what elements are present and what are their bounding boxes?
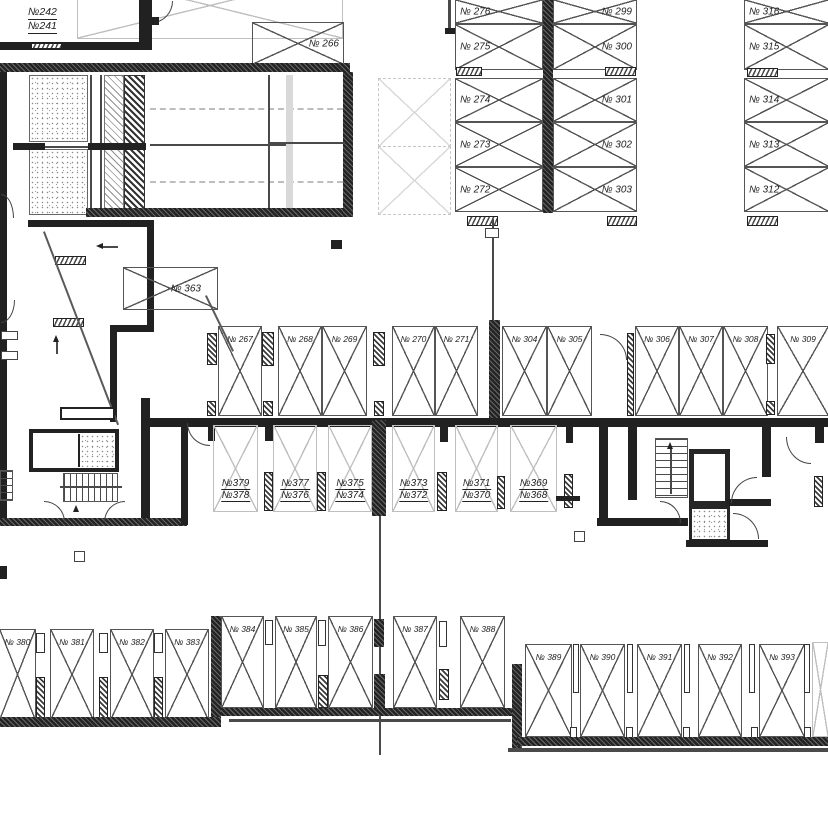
door-arc xyxy=(1,300,15,323)
stairs xyxy=(0,470,13,501)
space-label: № 299 xyxy=(602,6,632,17)
space-label: № 266 xyxy=(309,38,339,49)
vent-grille xyxy=(607,216,637,226)
space-label: № 301 xyxy=(602,95,632,106)
stair-arrow-icon xyxy=(73,505,79,512)
space-label: № 272 xyxy=(460,184,490,195)
space-label: № 392 xyxy=(707,652,733,662)
floor-plan-canvas: №242 №241 № 266 № 276 № 275 № 274 № 273 xyxy=(0,0,828,813)
space-label: № 276 xyxy=(460,6,490,17)
vent-stud xyxy=(684,644,690,693)
space-label: № 305 xyxy=(557,334,583,344)
shaft-room xyxy=(689,506,730,542)
vent-stud xyxy=(99,633,108,653)
outer-wall xyxy=(0,717,221,727)
space-pair-label: №371№370 xyxy=(462,478,492,502)
space-306-box: № 306 xyxy=(635,326,679,416)
door-arc xyxy=(731,477,757,503)
door-arc xyxy=(1,194,14,218)
space-pair-label: №377№376 xyxy=(280,478,310,502)
space-label: № 300 xyxy=(602,42,632,53)
space-309-box: № 309 xyxy=(777,326,828,416)
pillar xyxy=(374,401,384,416)
space-273-box: № 273 xyxy=(455,122,543,167)
dashed-space-box xyxy=(378,146,451,215)
pillar xyxy=(264,472,273,511)
space-label: № 270 xyxy=(401,334,427,344)
pillar xyxy=(627,333,634,416)
stair-arrow-line xyxy=(670,448,672,494)
unit-label-242-241: №242 №241 xyxy=(28,6,57,34)
space-label: № 388 xyxy=(470,624,496,634)
space-label: № 307 xyxy=(688,334,714,344)
wall-hatched xyxy=(0,63,350,72)
space-388-box: № 388 xyxy=(460,616,505,708)
door-arc xyxy=(600,334,627,360)
space-391-box: № 391 xyxy=(637,644,682,737)
wall xyxy=(181,420,188,525)
wall-stud xyxy=(815,427,824,443)
wall-stud xyxy=(265,427,273,441)
wall-hatched xyxy=(374,674,385,710)
space-label: № 380 xyxy=(5,637,31,647)
vent-grille xyxy=(605,67,636,76)
space-label: № 386 xyxy=(338,624,364,634)
vent-stud xyxy=(265,620,273,645)
space-label: № 383 xyxy=(174,637,200,647)
space-316-box: № 316 xyxy=(744,0,828,24)
lane-dash xyxy=(150,108,343,110)
door-hinge xyxy=(148,17,159,25)
wall xyxy=(0,42,139,50)
wall xyxy=(141,398,150,525)
space-label: № 273 xyxy=(460,139,490,150)
space-label: № 389 xyxy=(536,652,562,662)
room-block xyxy=(29,429,119,472)
step-wall xyxy=(211,616,221,727)
lane-dash xyxy=(150,181,343,183)
wall-stud xyxy=(440,427,448,442)
space-387-box: № 387 xyxy=(393,616,437,708)
space-389-box: № 389 xyxy=(525,644,572,737)
space-383-box: № 383 xyxy=(165,629,209,720)
wall xyxy=(762,420,771,477)
space-300-box: № 300 xyxy=(553,24,637,70)
space-267-box: № 267 xyxy=(218,326,262,416)
space-pair-371-370-box: №371№370 xyxy=(455,425,498,512)
door-arc xyxy=(104,501,125,522)
space-274-box: № 274 xyxy=(455,78,543,122)
space-301-box: № 301 xyxy=(553,78,637,122)
wall xyxy=(88,143,146,150)
space-pair-377-376-box: №377№376 xyxy=(273,425,317,512)
pillar xyxy=(263,401,273,416)
pillar xyxy=(318,675,328,708)
space-392-box: № 392 xyxy=(698,644,742,737)
ramp-arrow-icon xyxy=(53,335,59,342)
space-384-box: № 384 xyxy=(221,616,264,708)
space-label: № 267 xyxy=(227,334,253,344)
space-299-box: № 299 xyxy=(553,0,637,24)
wall-line xyxy=(268,142,345,144)
space-label: № 387 xyxy=(402,624,428,634)
pillar xyxy=(564,474,573,508)
wall-line xyxy=(45,146,89,148)
vent-stud xyxy=(749,644,755,693)
space-label: № 393 xyxy=(769,652,795,662)
space-270-box: № 270 xyxy=(392,326,435,416)
space-label: № 363 xyxy=(171,283,201,294)
space-pair-label: №373№372 xyxy=(399,478,429,502)
wall-hatched xyxy=(489,320,500,420)
outer-line xyxy=(229,719,511,722)
space-label: № 384 xyxy=(230,624,256,634)
floor-drain xyxy=(574,531,585,542)
elevator-shaft xyxy=(689,449,730,506)
space-308-box: № 308 xyxy=(723,326,768,416)
closet-room xyxy=(60,407,115,420)
shaft-room xyxy=(78,434,114,467)
space-pair-label: №379№378 xyxy=(221,478,251,502)
vent-stud xyxy=(804,644,810,693)
pillar xyxy=(36,677,45,718)
wall xyxy=(13,143,45,150)
wall-hatched xyxy=(372,420,386,516)
space-385-box: № 385 xyxy=(275,616,317,708)
vent-grille xyxy=(456,67,482,76)
ramp-arrow-icon xyxy=(96,243,103,249)
wall-hatched xyxy=(0,518,187,526)
space-269-box: № 269 xyxy=(322,326,367,416)
door-arc xyxy=(733,513,759,539)
space-315-box: № 315 xyxy=(744,24,828,70)
door-arc xyxy=(44,501,65,522)
space-305-box: № 305 xyxy=(547,326,592,416)
pillar xyxy=(207,401,216,416)
wall-hatched xyxy=(343,72,353,217)
space-label: № 269 xyxy=(332,334,358,344)
space-303-box: № 303 xyxy=(553,167,637,212)
space-label: № 304 xyxy=(512,334,538,344)
space-label: № 275 xyxy=(460,42,490,53)
space-label: № 382 xyxy=(119,637,145,647)
space-label: № 308 xyxy=(733,334,759,344)
space-label: № 302 xyxy=(602,139,632,150)
wall xyxy=(28,220,154,227)
wall-stud xyxy=(556,496,580,501)
window-mark xyxy=(1,331,18,340)
space-label: № 303 xyxy=(602,184,632,195)
space-pair-369-368-box: №369№368 xyxy=(510,425,557,512)
wall-stud xyxy=(566,427,573,443)
future-space-box xyxy=(812,642,828,737)
space-382-box: № 382 xyxy=(110,629,154,720)
pillar xyxy=(317,472,326,511)
door-arc xyxy=(786,437,811,464)
wall-stub xyxy=(0,566,7,579)
vent-stud xyxy=(627,644,633,693)
vent-stud xyxy=(318,620,326,646)
vent-grille xyxy=(747,216,778,226)
space-label: № 306 xyxy=(644,334,670,344)
dashed-space-box xyxy=(378,78,451,147)
pillar xyxy=(766,401,775,415)
space-pair-label: №375№374 xyxy=(335,478,365,502)
space-label: № 274 xyxy=(460,95,490,106)
space-302-box: № 302 xyxy=(553,122,637,167)
space-label: № 316 xyxy=(749,6,779,17)
space-276-box: № 276 xyxy=(455,0,543,24)
step-wall xyxy=(512,664,522,748)
wall xyxy=(599,420,608,519)
space-label: № 390 xyxy=(590,652,616,662)
wall xyxy=(445,28,455,34)
pillar xyxy=(814,476,823,507)
space-label: № 385 xyxy=(283,624,309,634)
pillar xyxy=(99,677,108,718)
window-mark xyxy=(1,351,18,360)
space-314-box: № 314 xyxy=(744,78,828,122)
vent-stud xyxy=(154,633,163,653)
wall xyxy=(686,540,768,547)
window-vent xyxy=(31,43,62,49)
wall xyxy=(628,420,637,500)
space-307-box: № 307 xyxy=(679,326,723,416)
pillar xyxy=(262,332,274,366)
space-304-box: № 304 xyxy=(502,326,547,416)
space-266-box: № 266 xyxy=(252,22,344,65)
space-393-box: № 393 xyxy=(759,644,805,737)
vent-grille xyxy=(55,256,86,265)
spine-wall xyxy=(543,0,553,213)
space-pair-label: №369№368 xyxy=(519,478,549,502)
stair-arrow-icon xyxy=(667,442,673,449)
door-arc xyxy=(660,501,681,523)
wall-hatched xyxy=(374,619,384,647)
space-pair-379-378-box: №379№378 xyxy=(213,425,258,512)
pillar xyxy=(437,472,447,511)
space-label: № 314 xyxy=(749,95,779,106)
space-label: № 312 xyxy=(749,184,779,195)
space-380-box: № 380 xyxy=(0,629,36,720)
outer-wall xyxy=(221,708,514,716)
ramp-arrow-line xyxy=(102,246,118,248)
space-271-box: № 271 xyxy=(435,326,478,416)
space-268-box: № 268 xyxy=(278,326,322,416)
space-275-box: № 275 xyxy=(455,24,543,70)
space-pair-373-372-box: №373№372 xyxy=(392,425,435,512)
concrete-fill xyxy=(29,75,88,142)
concrete-fill xyxy=(29,149,88,215)
stair-rail xyxy=(60,486,122,488)
pillar xyxy=(154,677,163,718)
space-272-box: № 272 xyxy=(455,167,543,212)
floor-drain xyxy=(74,551,85,562)
vent-stud xyxy=(36,633,45,653)
space-381-box: № 381 xyxy=(50,629,94,720)
space-label: № 313 xyxy=(749,139,779,150)
space-label: № 315 xyxy=(749,42,779,53)
outer-wall xyxy=(517,737,828,746)
vent-stud xyxy=(573,644,579,693)
wall-hatched xyxy=(86,208,353,217)
space-label: № 271 xyxy=(444,334,470,344)
space-label: № 268 xyxy=(287,334,313,344)
vent-stud xyxy=(439,621,447,647)
ramp-arrow-line xyxy=(56,340,58,354)
pillar xyxy=(439,669,449,700)
column xyxy=(331,240,342,249)
space-312-box: № 312 xyxy=(744,167,828,212)
space-label: № 391 xyxy=(647,652,673,662)
space-label: № 381 xyxy=(59,637,85,647)
door-arc xyxy=(187,423,210,446)
space-386-box: № 386 xyxy=(328,616,373,708)
pillar xyxy=(497,476,505,509)
space-pair-375-374-box: №375№374 xyxy=(328,425,372,512)
space-390-box: № 390 xyxy=(580,644,625,737)
junction-box xyxy=(485,228,499,238)
vent-grille xyxy=(747,68,778,77)
pillar xyxy=(766,334,775,364)
pillar xyxy=(373,332,385,366)
space-label: № 309 xyxy=(790,334,816,344)
outer-line xyxy=(508,748,828,752)
pillar xyxy=(207,333,217,365)
space-313-box: № 313 xyxy=(744,122,828,167)
wall xyxy=(139,0,152,50)
space-363-box: № 363 xyxy=(123,267,218,310)
outer-wall-left xyxy=(0,72,7,518)
